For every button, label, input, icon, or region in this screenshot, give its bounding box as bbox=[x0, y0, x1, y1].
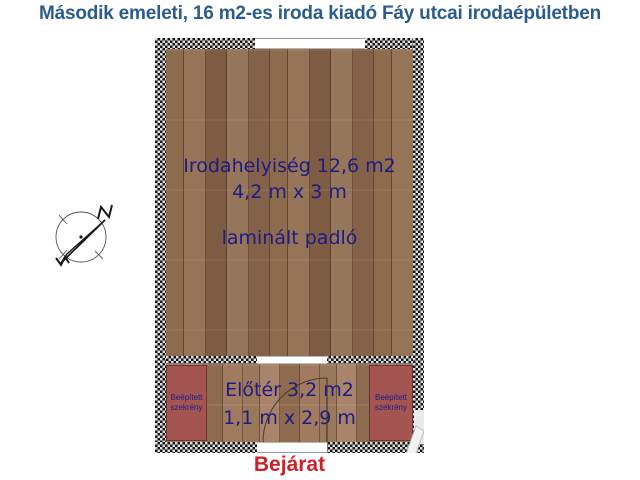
north-arrow-icon bbox=[48, 193, 126, 277]
wardrobe-left-label: Beépített szekrény bbox=[167, 393, 206, 413]
floorplan-page: Második emeleti, 16 m2-es iroda kiadó Fá… bbox=[0, 0, 640, 480]
wardrobe-left: Beépített szekrény bbox=[166, 365, 207, 441]
wall-left bbox=[155, 38, 166, 453]
office-label: Irodahelyiség 12,6 m2 bbox=[166, 155, 413, 178]
entrance-label: Bejárat bbox=[155, 453, 424, 477]
office-room: Irodahelyiség 12,6 m2 4,2 m x 3 m laminá… bbox=[166, 49, 413, 356]
floor-plan: Irodahelyiség 12,6 m2 4,2 m x 3 m laminá… bbox=[155, 38, 424, 453]
office-flooring: laminált padló bbox=[166, 227, 413, 250]
wardrobe-right-label: Beépített szekrény bbox=[370, 393, 412, 413]
wardrobe-right: Beépített szekrény bbox=[369, 365, 413, 441]
page-title: Második emeleti, 16 m2-es iroda kiadó Fá… bbox=[0, 3, 640, 25]
side-wall-opening bbox=[414, 410, 424, 444]
interior-door-opening bbox=[257, 356, 327, 364]
entrance-door-opening bbox=[257, 442, 327, 453]
window-opening bbox=[255, 38, 365, 49]
office-dimensions: 4,2 m x 3 m bbox=[166, 181, 413, 204]
wall-right bbox=[413, 38, 424, 453]
